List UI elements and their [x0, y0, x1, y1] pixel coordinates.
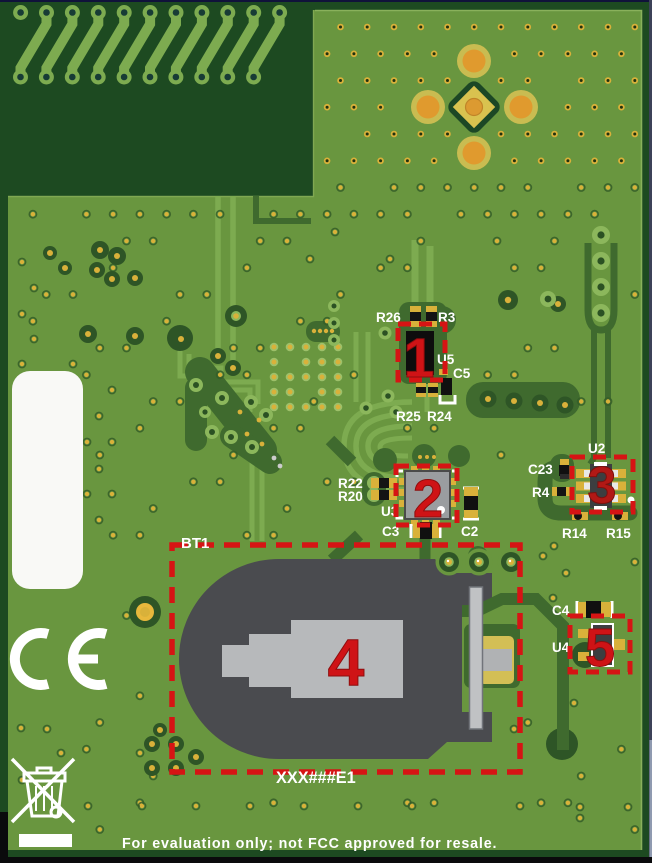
svg-text:XXX###E1: XXX###E1: [276, 769, 356, 787]
svg-text:3: 3: [588, 457, 617, 515]
svg-text:1: 1: [403, 326, 434, 389]
svg-text:4: 4: [328, 625, 365, 699]
svg-text:R24: R24: [427, 409, 452, 424]
svg-text:R15: R15: [606, 526, 631, 541]
svg-text:5: 5: [585, 618, 615, 678]
svg-text:R14: R14: [562, 526, 587, 541]
svg-text:C23: C23: [528, 462, 553, 477]
svg-text:U2: U2: [588, 441, 605, 456]
svg-text:C5: C5: [453, 366, 471, 381]
svg-text:R20: R20: [338, 489, 363, 504]
svg-text:BT1: BT1: [181, 535, 209, 552]
svg-text:C4: C4: [552, 603, 570, 618]
svg-text:R4: R4: [532, 485, 550, 500]
svg-text:U4: U4: [552, 640, 570, 655]
svg-text:For evaluation only; not FCC a: For evaluation only; not FCC approved fo…: [122, 836, 497, 852]
svg-text:2: 2: [413, 469, 443, 529]
svg-text:C2: C2: [461, 524, 478, 539]
svg-text:R25: R25: [396, 409, 421, 424]
svg-text:R26: R26: [376, 310, 401, 325]
